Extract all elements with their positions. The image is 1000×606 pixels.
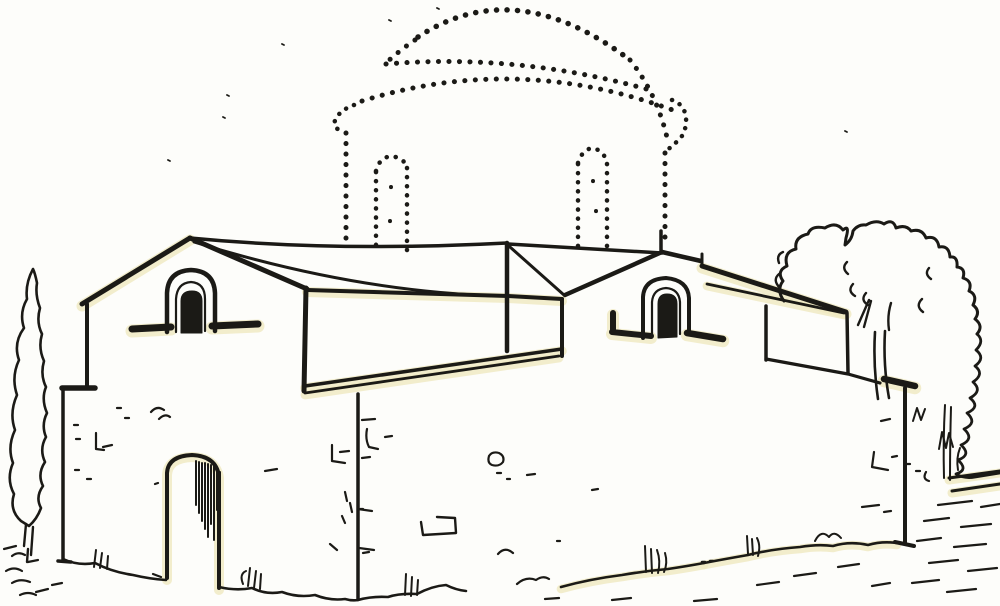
left-sill-left-bar [132, 327, 171, 329]
left-gable-window-core [181, 291, 202, 333]
annex-right-post [847, 313, 848, 373]
paper-background [0, 0, 1000, 606]
church-sketch [0, 0, 1000, 606]
sketch-page: Black ink line sketch of a Byzantine cro… [0, 0, 1000, 606]
right-gable-window-core [658, 294, 677, 338]
left-sill-right-bar [212, 324, 258, 326]
southwest-corner-post [304, 288, 306, 391]
